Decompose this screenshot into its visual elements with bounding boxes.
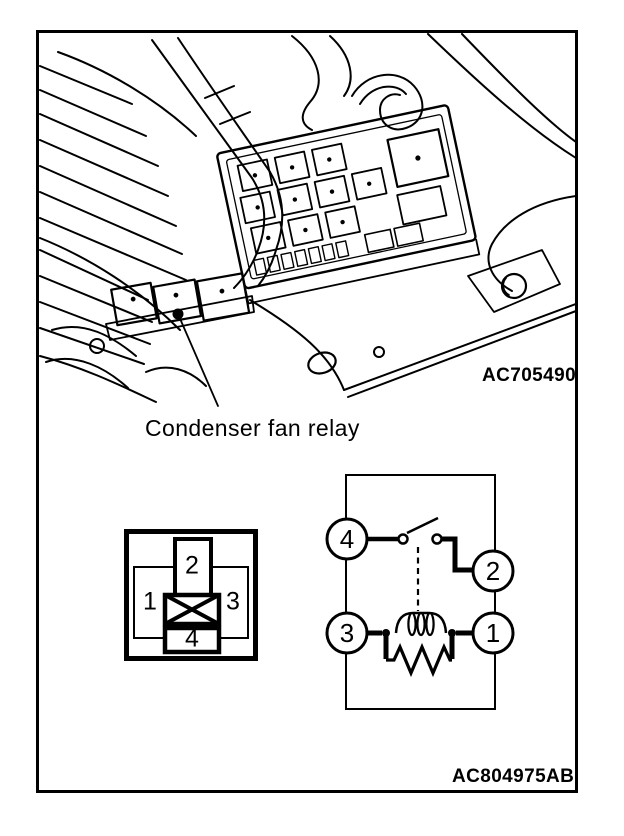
bracket-plate xyxy=(468,250,560,312)
schematic-terminal-1-label: 1 xyxy=(486,620,500,646)
strut-band xyxy=(152,38,270,178)
schematic-boundary-box xyxy=(346,475,495,709)
relay-circuit-schematic xyxy=(327,475,513,709)
coil-loop xyxy=(417,613,424,635)
engine-block-fins xyxy=(40,250,152,364)
cowl-curves xyxy=(428,34,576,291)
pinout-terminal-4-label: 4 xyxy=(185,627,199,652)
fuse-box-outline xyxy=(217,105,477,289)
figure-code-footer: AC804975AB xyxy=(452,767,574,786)
schematic-terminal-3-label: 3 xyxy=(340,620,354,646)
panel-hole xyxy=(374,347,384,357)
callout-label: Condenser fan relay xyxy=(145,417,360,440)
relay-dot xyxy=(130,296,136,302)
coil-loop xyxy=(426,613,433,635)
intake-fins-outline xyxy=(58,52,196,136)
fuse-box-rim xyxy=(226,114,467,279)
relay-dot xyxy=(173,292,179,298)
wire-terminal2 xyxy=(441,539,474,570)
switch-contact-left xyxy=(399,535,408,544)
figure-code-location: AC705490 xyxy=(482,366,576,385)
resistor-symbol xyxy=(386,647,452,673)
callout-leader-line xyxy=(178,314,218,406)
switch-blade xyxy=(407,518,438,533)
pinout-terminal-3-label: 3 xyxy=(226,590,240,615)
schematic-terminal-4-label: 4 xyxy=(340,526,354,552)
air-duct xyxy=(292,36,351,130)
relay-dot xyxy=(219,288,225,294)
grommet-oval xyxy=(306,349,339,377)
coil-loop xyxy=(408,613,415,635)
chassis-line xyxy=(250,300,344,390)
wiring-harness-loop xyxy=(352,75,422,130)
schematic-terminal-2-label: 2 xyxy=(486,558,500,584)
pinout-terminal-1-label: 1 xyxy=(143,590,157,615)
engine-bay-line-art xyxy=(40,34,576,406)
switch-contact-right xyxy=(433,535,442,544)
manual-figure-page: { "colors": { "ink": "#000000", "paper":… xyxy=(0,0,624,836)
fuse-relay-box xyxy=(217,105,480,304)
pinout-terminal-2-label: 2 xyxy=(185,554,199,579)
